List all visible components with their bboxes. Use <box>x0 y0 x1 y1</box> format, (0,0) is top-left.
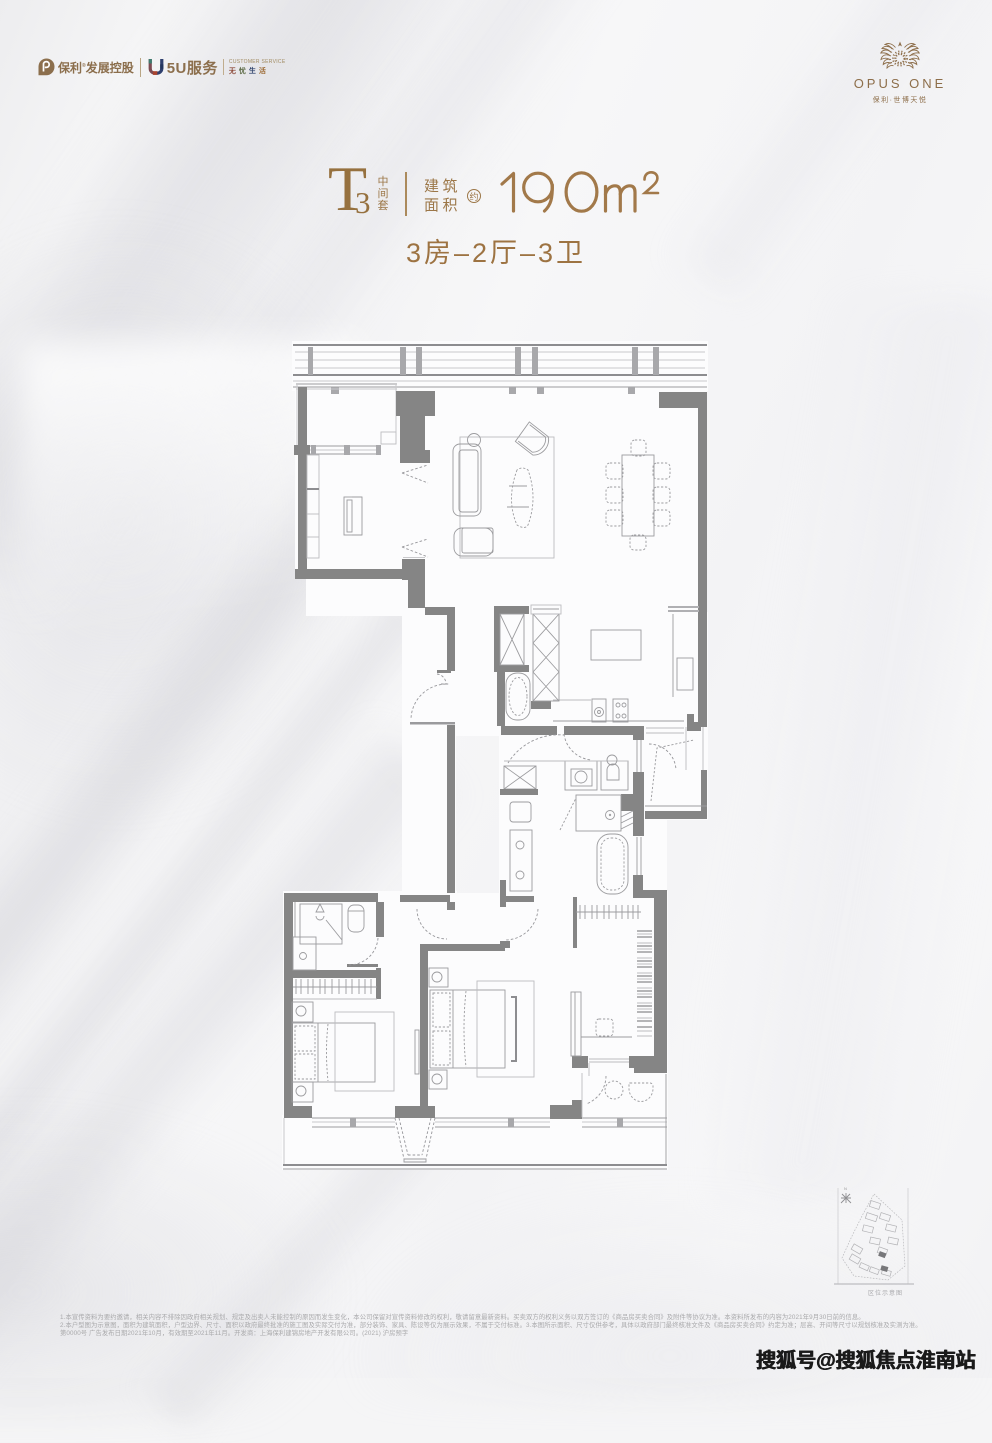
svg-text:N: N <box>844 1186 847 1191</box>
svg-text:区位示意图: 区位示意图 <box>868 1289 903 1297</box>
